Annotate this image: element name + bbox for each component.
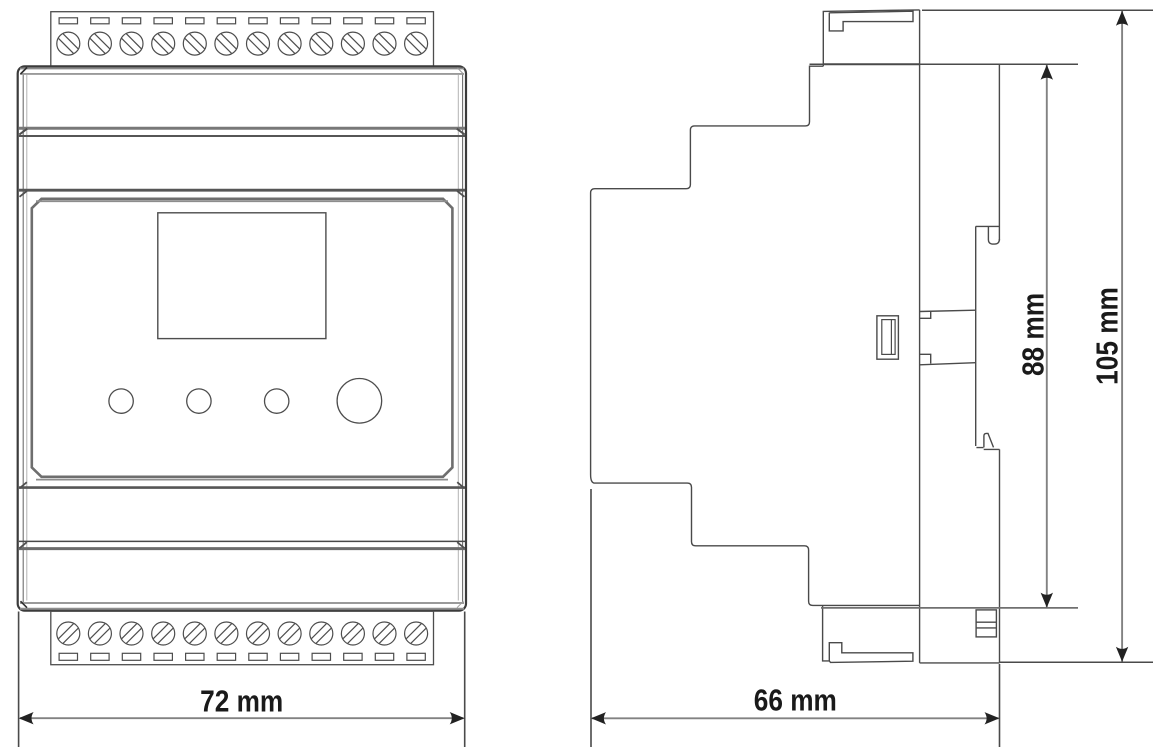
svg-text:72 mm: 72 mm	[200, 684, 283, 718]
svg-text:66 mm: 66 mm	[754, 683, 837, 717]
svg-text:88 mm: 88 mm	[1017, 293, 1051, 376]
svg-text:105 mm: 105 mm	[1090, 287, 1124, 385]
